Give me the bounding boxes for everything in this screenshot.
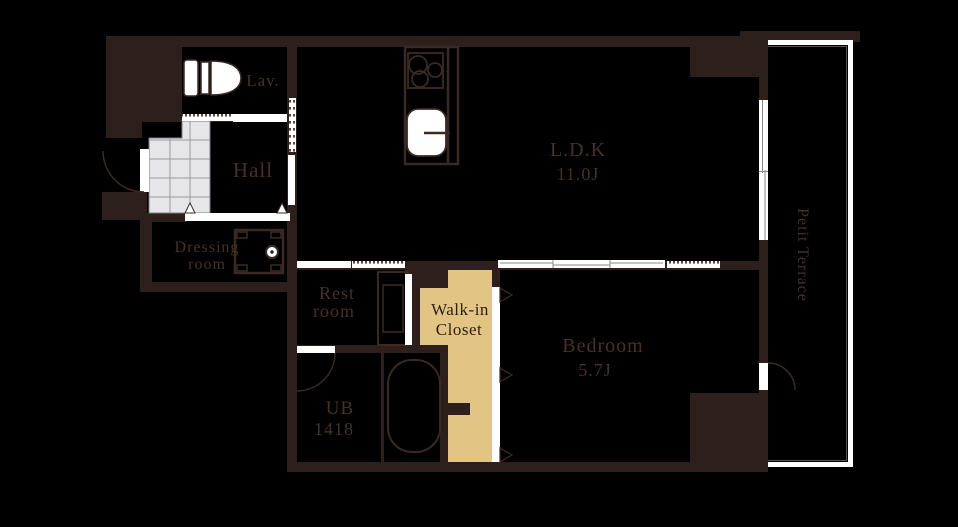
vanity-icon <box>378 272 412 345</box>
bedroom-name-label: Bedroom <box>562 335 643 357</box>
dressing-room-label-line1: Dressing <box>175 239 240 256</box>
lav-door-track <box>182 114 233 121</box>
closet-floor-column <box>448 270 492 462</box>
hall-dressing-opening <box>185 213 290 221</box>
walk-in-closet-label-line2: Closet <box>436 320 482 339</box>
wall-notch <box>440 403 470 415</box>
ldk-name-label: L.D.K <box>550 139 606 161</box>
ub-label-line1: UB <box>326 398 354 419</box>
walk-in-closet-label-line1: Walk-in <box>431 300 489 319</box>
tile-area <box>149 121 210 213</box>
wall-segment <box>140 215 152 292</box>
entry-door-swing-arc <box>103 151 144 192</box>
wall-segment <box>106 36 768 47</box>
wall-segment <box>147 213 187 222</box>
closet-door-arrow <box>500 368 512 382</box>
wall-segment <box>412 262 420 345</box>
wall-block-entry <box>106 37 182 138</box>
step-mark <box>277 203 287 213</box>
kitchen-counter-icon <box>405 47 458 164</box>
rest-room-label-line1: Rest <box>319 283 355 303</box>
hall-ldk-door-leaf <box>288 155 295 205</box>
bedroom-door-track <box>667 261 720 268</box>
restroom-door-track <box>352 261 405 268</box>
entry-door-leaf <box>140 149 149 192</box>
ub-door-swing-arc <box>297 353 335 391</box>
terrace-door-leaf <box>759 363 768 390</box>
hall-label: Hall <box>233 158 273 182</box>
wall-segment <box>140 282 297 292</box>
terrace-door-swing-arc <box>768 363 795 390</box>
toilet-icon <box>184 60 241 96</box>
lav-label: Lav. <box>246 71 280 90</box>
ub-door-leaf <box>297 346 335 353</box>
bedroom-size-label: 5.7J <box>578 360 612 380</box>
rest-room-label-line2: room <box>313 301 355 321</box>
closet-door-arrow <box>500 288 512 302</box>
wall-segment <box>381 353 384 462</box>
ub-label-line2: 1418 <box>314 419 354 439</box>
genkan-tile <box>149 121 210 213</box>
dressing-room-label-line2: room <box>188 256 226 273</box>
ldk-size-label: 11.0J <box>557 164 600 184</box>
closet-door-arrow <box>500 448 512 462</box>
floor-plan-svg: Lav. Hall Dressing room Rest room Walk-i… <box>0 0 958 527</box>
bathtub-icon <box>388 360 440 452</box>
wall-segment <box>690 36 768 77</box>
wall-block-bedroom-se <box>690 393 768 463</box>
ldk-window <box>759 100 768 240</box>
bedroom-sliding-door <box>498 260 665 268</box>
terrace-label: Petit Terrace <box>794 208 811 302</box>
wall-segment <box>287 462 768 472</box>
closet-folding-door <box>492 287 500 462</box>
restroom-door-leaf <box>297 261 351 268</box>
lav-door-leaf <box>233 114 287 122</box>
floor-plan: Lav. Hall Dressing room Rest room Walk-i… <box>0 0 958 527</box>
washer-pan-icon <box>235 230 283 273</box>
hall-ldk-door-track <box>289 98 296 152</box>
